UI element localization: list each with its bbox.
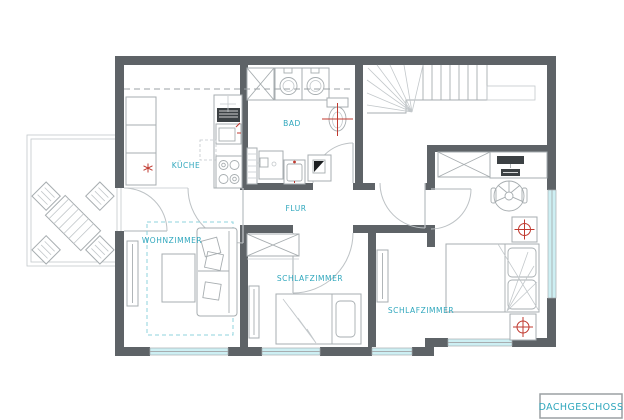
room-label-bad: BAD xyxy=(283,119,301,128)
kitchen-fixtures xyxy=(126,95,242,188)
desk-icon xyxy=(490,152,547,178)
floorplan-canvas: KÜCHE BAD FLUR WOHNZIMMER SCHLAFZIMMER S… xyxy=(0,0,624,420)
washing-machine-icon xyxy=(284,160,305,184)
coffee-table-icon xyxy=(162,254,195,302)
window xyxy=(448,339,512,346)
page-title: DACHGESCHOSS xyxy=(539,402,624,413)
plan-title: DACHGESCHOSS xyxy=(539,394,624,418)
door-hall xyxy=(380,183,425,228)
nightstand-icon xyxy=(510,314,536,340)
double-bed-icon xyxy=(446,244,539,312)
window xyxy=(262,348,320,355)
kitchen-counter-icon xyxy=(126,97,156,185)
toilet-icon xyxy=(322,98,353,136)
room-label-schlafzimmer-rechts: SCHLAFZIMMER xyxy=(388,306,454,315)
office-chair-icon xyxy=(491,181,527,211)
window xyxy=(548,190,556,298)
floorplan-svg: KÜCHE BAD FLUR WOHNZIMMER SCHLAFZIMMER S… xyxy=(0,0,624,420)
shower-tray-icon xyxy=(247,68,274,100)
radiator-icon xyxy=(377,250,388,302)
door-balcony xyxy=(124,188,167,231)
stove-icon xyxy=(216,156,242,188)
door-bedroom-right xyxy=(431,189,471,229)
monitor-icon xyxy=(497,156,524,164)
window xyxy=(372,348,412,355)
wardrobe-icon xyxy=(438,152,490,177)
shower-icon xyxy=(257,151,283,179)
room-label-wohnzimmer: WOHNZIMMER xyxy=(142,236,202,245)
door-bedroom-middle xyxy=(293,233,353,293)
floor-drain-icon xyxy=(308,155,331,181)
room-label-kueche: KÜCHE xyxy=(172,161,201,170)
staircase xyxy=(367,65,535,113)
radiator-icon xyxy=(249,286,259,338)
room-label-schlafzimmer-mitte: SCHLAFZIMMER xyxy=(277,274,343,283)
patio-chair-icon xyxy=(32,236,60,264)
nightstand-icon xyxy=(512,217,537,242)
washbasin-icon xyxy=(302,68,329,100)
towel-radiator-icon xyxy=(247,148,257,184)
wardrobe-icon xyxy=(247,234,299,259)
bedroom-middle-furniture xyxy=(247,234,361,344)
patio-chair-icon xyxy=(86,182,114,210)
window xyxy=(150,348,228,355)
sofa-icon xyxy=(197,228,237,316)
kitchen-sink-icon xyxy=(216,108,241,144)
single-bed-icon xyxy=(276,294,361,344)
radiator-icon xyxy=(127,241,138,306)
room-label-flur: FLUR xyxy=(285,204,306,213)
washbasin-icon xyxy=(275,68,302,100)
